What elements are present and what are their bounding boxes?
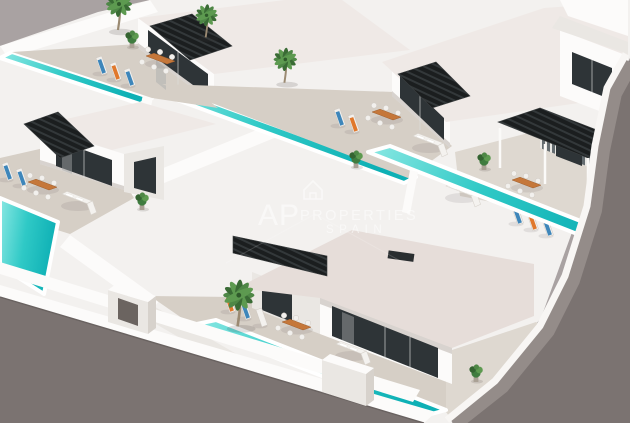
annex-window: [134, 157, 156, 194]
region-text: SPAIN: [326, 224, 387, 236]
villa-development-render: AP PROPERTIES SPAIN: [0, 0, 630, 423]
brand-text: AP: [258, 199, 300, 232]
brand-word-text: PROPERTIES: [300, 208, 418, 224]
render-canvas: AP PROPERTIES SPAIN: [0, 0, 630, 423]
